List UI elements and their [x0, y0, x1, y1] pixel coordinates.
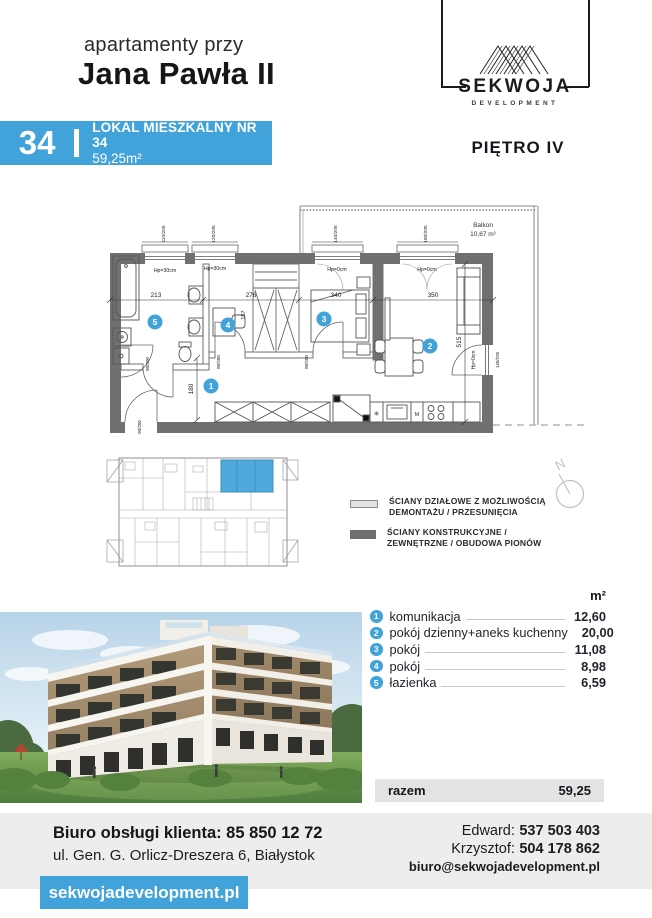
closet — [253, 264, 299, 352]
contact2-name: Krzysztof: — [451, 841, 515, 857]
project-subtitle: apartamenty przy — [84, 34, 243, 57]
project-title: Jana Pawła II — [78, 56, 275, 92]
logo-frame-right — [588, 0, 590, 87]
svg-text:110/205: 110/205 — [161, 225, 167, 242]
total-label: razem — [388, 783, 426, 798]
svg-text:157: 157 — [241, 310, 247, 319]
svg-text:M: M — [415, 412, 420, 418]
svg-text:180/205: 180/205 — [423, 225, 429, 243]
svg-text:80/200: 80/200 — [304, 355, 309, 369]
legend-item-structural: ŚCIANY KONSTRUKCYJNE / ZEWNĘTRZNE / OBUD… — [350, 527, 610, 549]
row-number-badge: 5 — [370, 676, 383, 689]
svg-text:Hp=30cm: Hp=30cm — [204, 266, 226, 272]
svg-text:3: 3 — [322, 314, 327, 324]
row-number-badge: 3 — [370, 643, 383, 656]
unit-area: 59,25m² — [92, 151, 272, 167]
svg-text:Hp=0cm: Hp=0cm — [327, 267, 346, 273]
room-area-value: 11,08 — [570, 642, 606, 657]
svg-text:120/205: 120/205 — [211, 225, 217, 243]
compass-north-label: N — [552, 456, 567, 473]
room-area-value: 6,59 — [570, 675, 606, 690]
room-label: komunikacja — [390, 609, 461, 624]
legend-text: ZEWNĘTRZNE / OBUDOWA PIONÓW — [387, 538, 541, 549]
svg-text:80/200: 80/200 — [145, 357, 150, 371]
svg-text:140/235: 140/235 — [495, 351, 500, 368]
table-row: 1 komunikacja 12,60 — [370, 608, 606, 625]
room-label: pokój dzienny+aneks kuchenny — [390, 625, 568, 640]
sales-contact-block: Edward: 537 503 403 Krzysztof: 504 178 8… — [409, 822, 600, 876]
area-unit-header: m² — [370, 588, 606, 608]
balcony-label: Balkon — [473, 222, 493, 229]
contact2-phone: 504 178 862 — [519, 841, 600, 857]
table-row: 3 pokój 11,08 — [370, 641, 606, 658]
svg-text:140/205: 140/205 — [333, 225, 339, 243]
partition-wall-swatch — [350, 500, 378, 508]
website-link[interactable]: sekwojadevelopment.pl — [40, 876, 248, 909]
table-row: 2 pokój dzienny+aneks kuchenny 20,00 — [370, 625, 606, 642]
wall-legend: ŚCIANY DZIAŁOWE Z MOŻLIWOŚCIĄ DEMONTAŻU … — [350, 496, 610, 558]
room-label: pokój — [390, 659, 421, 674]
floor-plan: Balkon 10,67 m² — [85, 190, 645, 450]
unit-banner: 34 LOKAL MIESZKALNY NR 34 59,25m² — [0, 121, 272, 165]
leader-line — [425, 642, 565, 653]
logo-roof-icon — [478, 42, 554, 76]
svg-text:276: 276 — [246, 292, 257, 299]
total-area-bar: razem 59,25 — [375, 779, 604, 802]
key-plan — [105, 452, 300, 574]
contact1-name: Edward: — [462, 823, 515, 839]
svg-text:4: 4 — [226, 320, 231, 330]
table-row: 4 pokój 8,98 — [370, 658, 606, 675]
office-contact-block: Biuro obsługi klienta: 85 850 12 72 ul. … — [53, 822, 322, 867]
room-label: pokój — [390, 642, 421, 657]
logo-frame-left — [441, 0, 443, 87]
balcony-area: 10,67 m² — [470, 231, 496, 238]
legend-text: ŚCIANY KONSTRUKCYJNE / — [387, 527, 541, 538]
legend-text: DEMONTAŻU / PRZESUNIĘCIA — [389, 507, 546, 518]
svg-text:Hp=0cm: Hp=0cm — [471, 351, 477, 370]
logo-wordmark: SEKWOJA — [441, 76, 589, 98]
legend-text: ŚCIANY DZIAŁOWE Z MOŻLIWOŚCIĄ — [389, 496, 546, 507]
row-number-badge: 4 — [370, 660, 383, 673]
svg-text:350: 350 — [428, 292, 439, 299]
office-phone: 85 850 12 72 — [226, 824, 322, 842]
floor-label: PIĘTRO IV — [448, 138, 588, 158]
office-label: Biuro obsługi klienta: — [53, 824, 222, 842]
svg-text:5: 5 — [153, 317, 158, 327]
unit-label: LOKAL MIESZKALNY NR 34 — [92, 120, 272, 151]
total-value: 59,25 — [558, 783, 591, 798]
leader-line — [466, 609, 565, 620]
room-area-value: 12,60 — [570, 609, 606, 624]
leader-line — [441, 676, 565, 687]
building-render-image — [0, 612, 362, 803]
leader-line — [425, 659, 565, 670]
svg-text:✳: ✳ — [374, 410, 380, 418]
logo-subtitle: DEVELOPMENT — [441, 100, 589, 107]
flyer-page: apartamenty przy Jana Pawła II 34 LOKAL … — [0, 0, 652, 918]
svg-text:80/200: 80/200 — [216, 355, 221, 369]
structural-wall-swatch — [350, 530, 376, 539]
svg-text:180: 180 — [188, 383, 195, 394]
svg-text:Hp=30cm: Hp=30cm — [154, 268, 176, 274]
svg-text:Hp=0cm: Hp=0cm — [417, 267, 436, 273]
svg-text:213: 213 — [151, 292, 162, 299]
room-area-value: 20,00 — [578, 625, 614, 640]
svg-text:1: 1 — [209, 381, 214, 391]
banner-divider — [74, 129, 79, 157]
contact-email: biuro@sekwojadevelopment.pl — [409, 858, 600, 876]
row-number-badge: 2 — [370, 627, 383, 640]
room-area-table: m² 1 komunikacja 12,60 2 pokój dzienny+a… — [370, 588, 606, 691]
office-address: ul. Gen. G. Orlicz-Dreszera 6, Białystok — [53, 845, 322, 867]
kitchen-and-wardrobe: ✳ M — [215, 395, 480, 422]
contact1-phone: 537 503 403 — [519, 823, 600, 839]
svg-text:90/200: 90/200 — [137, 420, 142, 434]
legend-item-partition: ŚCIANY DZIAŁOWE Z MOŻLIWOŚCIĄ DEMONTAŻU … — [350, 496, 610, 518]
key-plan-highlighted-unit — [221, 460, 273, 492]
svg-text:515: 515 — [456, 336, 463, 347]
room-area-value: 8,98 — [570, 659, 606, 674]
room-label: łazienka — [390, 675, 437, 690]
row-number-badge: 1 — [370, 610, 383, 623]
svg-text:2: 2 — [428, 341, 433, 351]
svg-text:340: 340 — [331, 292, 342, 299]
unit-number: 34 — [0, 124, 74, 162]
table-row: 5 łazienka 6,59 — [370, 674, 606, 691]
